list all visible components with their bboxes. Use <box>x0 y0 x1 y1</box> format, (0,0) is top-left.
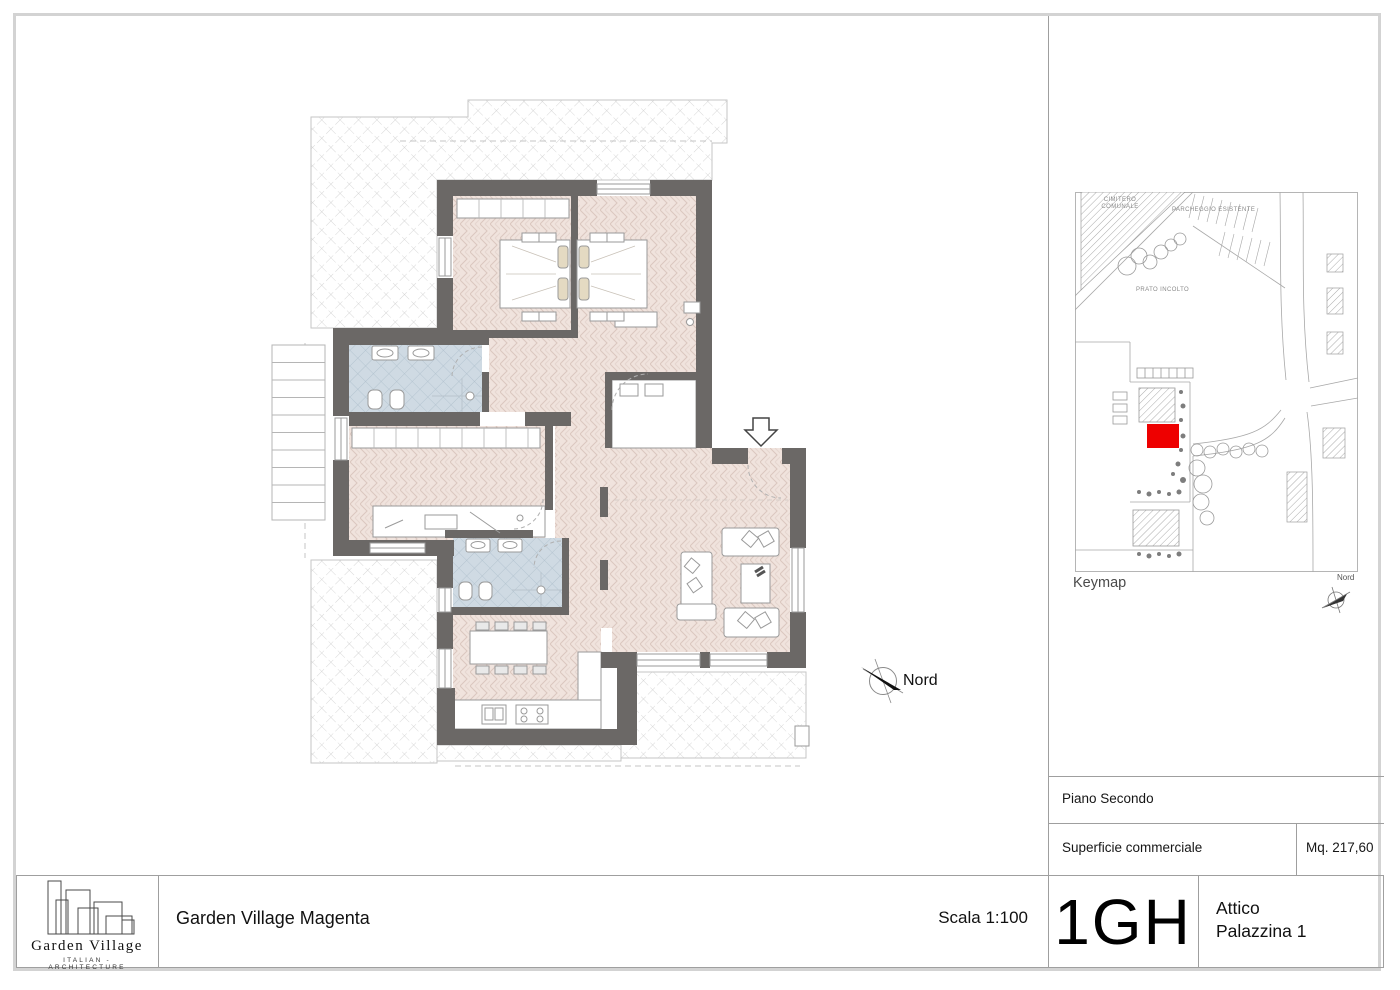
unit-cell-divider <box>1198 875 1199 968</box>
logo-name: Garden Village <box>24 938 150 955</box>
keymap-label-parking: PARCHEGGIO ESISTENTE <box>1172 207 1255 213</box>
area-label: Superficie commerciale <box>1062 840 1202 855</box>
floor-label: Piano Secondo <box>1062 791 1154 806</box>
sidebar-row-line-2 <box>1048 823 1384 824</box>
logo-cell-divider <box>158 875 159 968</box>
keymap-north-label: Nord <box>1337 573 1354 582</box>
north-label: Nord <box>903 672 938 690</box>
entrance-arrow-icon <box>745 418 777 446</box>
unit-location-marker <box>1147 424 1179 448</box>
sidebar-divider <box>1048 16 1049 875</box>
scale-label: Scala 1:100 <box>800 908 1028 928</box>
drawing-sheet: Nord <box>0 0 1400 990</box>
unit-code: 1GH <box>1048 875 1198 968</box>
unit-name: Attico Palazzina 1 <box>1216 897 1306 943</box>
building-1 <box>1139 388 1175 422</box>
coffee-table <box>741 564 770 603</box>
keymap <box>1075 192 1358 572</box>
keymap-north-compass-icon <box>1316 582 1356 618</box>
logo-tagline: ITALIAN - ARCHITECTURE <box>24 957 150 971</box>
garden-village-logo-icon <box>42 880 137 936</box>
floor-plan <box>0 0 1048 875</box>
kitchen-counter-side <box>578 652 601 700</box>
sidebar-row-line-1 <box>1048 776 1384 777</box>
building-2 <box>1133 510 1179 546</box>
wardrobe-bedroom-1 <box>457 199 569 218</box>
wardrobe-studio <box>352 428 540 448</box>
north-compass-icon <box>861 659 903 703</box>
keymap-label-meadow: PRATO INCOLTO <box>1136 287 1189 293</box>
project-title: Garden Village Magenta <box>176 908 370 929</box>
dining-table <box>470 631 547 664</box>
terrace-pillar <box>795 726 809 746</box>
area-value: Mq. 217,60 <box>1306 840 1374 855</box>
keymap-caption: Keymap <box>1073 575 1126 591</box>
keymap-label-cemetery: CIMITERO COMUNALE <box>1090 197 1150 211</box>
area-value-divider <box>1296 823 1297 875</box>
external-stairs <box>272 345 325 520</box>
